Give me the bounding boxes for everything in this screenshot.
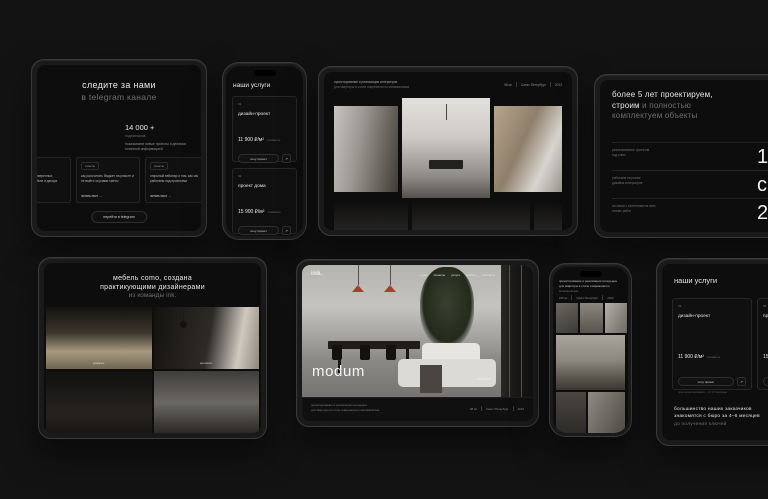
service-card-house-project: 02 проект дома 15 900 ₽/м²стоимость хочу… (232, 168, 297, 234)
service-price: 15 900 ₽/м² (238, 209, 264, 215)
clients-note-line2: знакомятся с бюро за 4–6 месяцев (674, 413, 760, 420)
view-project-link[interactable]: смотреть → (477, 377, 495, 381)
project-description: проектирование и реализация интерьеров д… (334, 80, 409, 90)
hero-photo: ink. о нас проекты услуги мебель контакт… (302, 265, 533, 397)
post-text: открытый вебинар о том, как мы работаем … (150, 174, 201, 194)
price-note: стоимость (267, 210, 280, 214)
nav-item-services[interactable]: услуги (451, 273, 460, 277)
screen: ink. о нас проекты услуги мебель контакт… (302, 265, 533, 421)
project-meta: 100 м² Санкт-Петербург 2023 (559, 295, 613, 300)
want-project-button[interactable]: хочу проект (763, 377, 768, 386)
screen: следите за нами в telegram канале 14 000… (37, 65, 201, 231)
divider (602, 295, 603, 300)
furniture-grid: диваны кровати (46, 307, 259, 433)
service-name: дизайн-проект (238, 112, 291, 117)
screen: наши услуги 01 дизайн-проект 11 900 ₽/м²… (226, 66, 303, 236)
stat-label-line2: под ключ (612, 153, 649, 158)
meta-year: 2023 (555, 83, 562, 87)
stat-label: подписчиков (125, 134, 189, 138)
project-description: проектирование и реализация интерьера дл… (311, 403, 379, 412)
como-heading-line1: мебель como, создана (44, 274, 261, 283)
button-row: хочу проект ↗ (238, 226, 291, 235)
photo-interior (588, 392, 625, 433)
read-post-link[interactable]: читать пост → (150, 194, 201, 198)
screen: наши услуги 01 дизайн-проект 11 900 ₽/м²… (662, 264, 768, 440)
screen: мебель como, создана практикующими дизай… (44, 263, 261, 433)
button-row: хочу проект ↗ (238, 154, 291, 163)
phone-project-gallery: проектирование и реализация интерьера дл… (549, 263, 632, 437)
category-label-beds[interactable]: кровати (200, 361, 212, 365)
stats-heading-line2: строим и полностью (612, 101, 713, 112)
stat-row: реализованных проектов под ключ 100+ (612, 142, 768, 170)
project-title: modum (312, 363, 365, 380)
service-number: 01 (238, 102, 291, 106)
nav-item-contacts[interactable]: контакты (482, 273, 495, 277)
go-to-telegram-button[interactable]: перейти в telegram (91, 211, 147, 223)
photo-dining-set (154, 371, 260, 433)
dining-table-shape (429, 160, 463, 169)
service-price: 15 900 ₽/м² (763, 354, 768, 360)
photo-dark-interior (334, 200, 408, 230)
arrow-right-icon: → (168, 194, 171, 198)
nav-item-about[interactable]: о нас (420, 273, 427, 277)
divider (481, 406, 482, 411)
read-post-label: читать пост (150, 194, 167, 198)
photo-interior (556, 392, 586, 433)
stat-label: работаем на рынке дизайна интерьеров (612, 176, 642, 186)
dynamic-island (580, 271, 602, 277)
meta-city: Санкт-Петербург (486, 407, 509, 411)
service-name: проект дома (763, 314, 768, 319)
stat-value: с 2018 (757, 174, 768, 197)
pendant-lamp-shape (180, 321, 187, 328)
tablet-stats: более 5 лет проектируем, строим и полнос… (594, 74, 768, 238)
telegram-heading-line1: следите за нами (37, 80, 201, 92)
service-caption: срок проектирования — от 1,5 месяцев (678, 391, 746, 395)
service-price: 11 900 ₽/м² (238, 137, 264, 143)
want-project-button[interactable]: хочу проект (678, 377, 734, 386)
tablet-project-gallery: проектирование и реализация интерьеров д… (318, 66, 578, 236)
tablet-modum-hero: ink. о нас проекты услуги мебель контакт… (296, 259, 539, 427)
category-label-sofas[interactable]: диваны (93, 361, 105, 365)
description-line2: для квартиры в стиле современного (559, 284, 617, 289)
tablet-como-furniture: мебель como, создана практикующими дизай… (38, 257, 267, 439)
meta-year: 2023 (518, 407, 524, 411)
photo-dining-room (402, 98, 490, 198)
tablet-services: наши услуги 01 дизайн-проект 11 900 ₽/м²… (656, 258, 768, 446)
price-note: стоимость (267, 138, 280, 142)
service-number: 02 (238, 174, 291, 178)
price-row: 11 900 ₽/м²стоимость (678, 345, 746, 363)
photo-dark-interior (534, 200, 562, 230)
view-label: смотреть (477, 377, 491, 381)
services-title: наши услуги (674, 276, 717, 285)
photo-row (556, 392, 625, 433)
telegram-heading-line2: в telegram канале (37, 92, 201, 103)
screen: проектирование и реализация интерьера дл… (553, 267, 628, 433)
service-number: 01 (678, 304, 746, 308)
como-heading: мебель como, создана практикующими дизай… (44, 274, 261, 301)
post-tag: советы (81, 162, 99, 170)
price-row: 15 900 ₽/м²стоимость (238, 200, 291, 218)
clients-note-line3: до получения ключей (674, 421, 760, 428)
description-line2: для квартиры в стиле современного минима… (334, 85, 409, 90)
meta-city: Санкт-Петербург (521, 83, 546, 87)
service-card-design-project: 01 дизайн-проект 11 900 ₽/м²стоимость хо… (232, 96, 297, 162)
meta-area: 100 м² (559, 296, 567, 300)
photo-dark-interior (412, 198, 530, 230)
read-post-link[interactable]: читать пост → (81, 194, 135, 198)
stat-label: на связи с клиентами на всех этапах рабо… (612, 204, 656, 214)
photo-row (556, 303, 627, 333)
stats-heading-white: строим (612, 101, 640, 110)
post-text: как рассчитать бюджет на ремонт и не вый… (81, 174, 135, 194)
stats-heading-line3: комплектуем объекты (612, 111, 713, 122)
photo-bedroom (494, 106, 562, 192)
post-card[interactable]: советы как рассчитать бюджет на ремонт и… (76, 157, 140, 203)
stat-row: работаем на рынке дизайна интерьеров с 2… (612, 170, 768, 198)
arrow-up-right-icon[interactable]: ↗ (737, 377, 746, 386)
post-text: собрали базу проверенных поставщиков меб… (37, 174, 66, 194)
read-post-label: читать пост (81, 194, 98, 198)
photo-hallway (334, 106, 398, 192)
como-heading-line2: практикующими дизайнерами (44, 283, 261, 292)
arrow-up-right-icon[interactable]: ↗ (282, 154, 291, 163)
stats-heading-gray: и полностью (640, 101, 691, 110)
price-note: стоимость (707, 355, 720, 359)
divider (571, 295, 572, 300)
clients-note-line1: большинство наших заказчиков (674, 406, 760, 413)
pendant-wire (446, 104, 447, 120)
chair-shape (386, 345, 396, 360)
phone-services: наши услуги 01 дизайн-проект 11 900 ₽/м²… (222, 62, 307, 240)
arrow-right-icon: → (492, 377, 495, 381)
nav-item-projects[interactable]: проекты (434, 273, 446, 277)
tablet-telegram-promo: следите за нами в telegram канале 14 000… (31, 59, 207, 237)
photo-interior (580, 303, 602, 333)
stat-label-line2: этапах работ (612, 209, 656, 214)
service-price: 11 900 ₽/м² (678, 354, 704, 360)
service-number: 02 (763, 304, 768, 308)
arrow-right-icon: → (99, 194, 102, 198)
dynamic-island (254, 70, 276, 76)
want-project-button[interactable]: хочу проект (238, 226, 279, 235)
want-project-button[interactable]: хочу проект (238, 154, 279, 163)
stat-label: реализованных проектов под ключ (612, 148, 649, 158)
stat-row: на связи с клиентами на всех этапах рабо… (612, 198, 768, 226)
clients-note: большинство наших заказчиков знакомятся … (674, 406, 760, 428)
window-shape (501, 265, 533, 397)
project-meta: 98 м² Санкт-Петербург 2023 (470, 406, 524, 411)
side-table-shape (420, 365, 442, 393)
stats-rows: реализованных проектов под ключ 100+ раб… (612, 142, 768, 226)
photo-bed: кровати (154, 307, 260, 369)
divider (513, 406, 514, 411)
stat-value: 24/7 (757, 202, 768, 225)
telegram-heading: следите за нами в telegram канале (37, 80, 201, 103)
screen: более 5 лет проектируем, строим и полнос… (600, 80, 768, 232)
pendant-wire (183, 307, 184, 321)
photo-bedroom-large (556, 335, 625, 390)
hero-footer: проектирование и реализация интерьера дл… (302, 397, 533, 421)
service-card-design-project: 01 дизайн-проект 11 900 ₽/м²стоимость хо… (672, 298, 752, 390)
project-description: проектирование и реализация интерьера дл… (559, 279, 617, 293)
service-name: дизайн-проект (678, 314, 746, 319)
divider (550, 82, 551, 87)
photo-sofa: диваны (46, 307, 152, 369)
nav-item-furniture[interactable]: мебель (466, 273, 476, 277)
button-row: хочу проект ↗ (678, 377, 746, 386)
read-post-link[interactable]: читать пост → (37, 194, 66, 198)
services-title: наши услуги (233, 82, 270, 89)
chair-shape (360, 345, 370, 360)
photo-dark-living-room (46, 371, 152, 433)
site-topbar: ink. о нас проекты услуги мебель контакт… (302, 265, 533, 283)
price-row: 11 900 ₽/м²стоимость (238, 128, 291, 146)
post-tag: советы (150, 162, 168, 170)
stat-caption: показываем новые проекты и делимся полез… (125, 142, 189, 153)
photo-interior (605, 303, 627, 333)
button-row: хочу проект ↗ (763, 377, 768, 386)
screen: проектирование и реализация интерьеров д… (324, 72, 572, 230)
site-nav: о нас проекты услуги мебель контакты (420, 273, 495, 277)
stat-label-line2: дизайна интерьеров (612, 181, 642, 186)
description-line3: минимализма (559, 289, 617, 294)
stats-heading: более 5 лет проектируем, строим и полнос… (612, 90, 713, 122)
stat-value: 14 000 + (125, 123, 189, 132)
como-heading-line3: из команды ink. (44, 292, 261, 301)
meta-city: Санкт-Петербург (576, 296, 598, 300)
service-card-house-project: 02 проект дома 15 900 ₽/м²стоимость хочу… (757, 298, 768, 390)
logo[interactable]: ink. (311, 271, 323, 277)
price-row: 15 900 ₽/м²стоимость (763, 345, 768, 363)
post-card[interactable]: советы собрали базу проверенных поставщи… (37, 157, 71, 203)
meta-area: 98 м² (470, 407, 477, 411)
sofa-seat-shape (398, 359, 496, 387)
stats-heading-line1: более 5 лет проектируем, (612, 90, 713, 101)
red-pendant-lamp (384, 285, 396, 292)
post-card[interactable]: советы открытый вебинар о том, как мы ра… (145, 157, 201, 203)
chair-shape (332, 345, 342, 360)
project-meta: 98 м² Санкт-Петербург 2023 (504, 82, 562, 87)
red-pendant-lamp (352, 285, 364, 292)
mockup-stage: следите за нами в telegram канале 14 000… (0, 0, 768, 499)
subscribers-stat: 14 000 + подписчиков показываем новые пр… (125, 123, 189, 153)
photo-interior (556, 303, 578, 333)
stat-value: 100+ (757, 146, 768, 169)
divider (516, 82, 517, 87)
post-cards-row: советы собрали базу проверенных поставщи… (37, 157, 201, 203)
description-line2: для квартиры в стиле современного минима… (311, 408, 379, 413)
service-name: проект дома (238, 184, 291, 189)
meta-area: 98 м² (504, 83, 512, 87)
arrow-up-right-icon[interactable]: ↗ (282, 226, 291, 235)
meta-year: 2023 (607, 296, 613, 300)
